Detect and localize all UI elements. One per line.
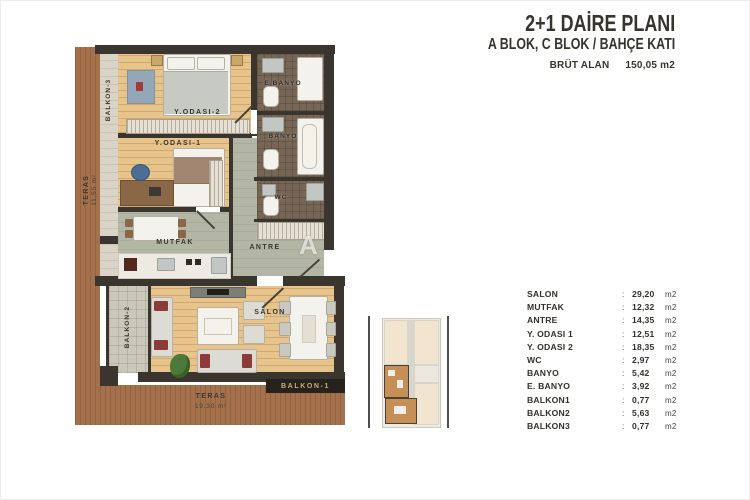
keyplan-unit-highlight bbox=[384, 365, 409, 398]
teras-left-label: TERAS 11,55 m² bbox=[79, 145, 101, 235]
gross-area-label: BRÜT ALAN bbox=[550, 60, 610, 71]
pillow-right bbox=[197, 57, 225, 70]
table-row: ANTRE:14,35m2 bbox=[527, 315, 677, 328]
corridor-floor bbox=[233, 138, 257, 225]
teras-left-name: TERAS bbox=[83, 175, 91, 206]
row-value: 0,77 bbox=[632, 421, 665, 431]
shower bbox=[297, 57, 323, 101]
kitchen-counter bbox=[118, 253, 231, 279]
row-label: SALON bbox=[527, 289, 622, 299]
area-table: SALON:29,20m2 MUTFAK:12,32m2 ANTRE:14,35… bbox=[527, 289, 677, 434]
row-separator: : bbox=[622, 315, 632, 325]
kitchen-chair-4 bbox=[178, 230, 186, 238]
wall-corridor bbox=[229, 138, 233, 208]
keyplan-unit-tl bbox=[384, 320, 409, 365]
kitchen-chair-2 bbox=[125, 230, 133, 238]
rug bbox=[127, 70, 155, 104]
row-unit: m2 bbox=[665, 303, 677, 312]
row-value: 3,92 bbox=[632, 381, 665, 391]
pillow-2 bbox=[154, 340, 168, 350]
row-separator: : bbox=[622, 329, 632, 339]
pillow-1 bbox=[154, 301, 168, 311]
table-row: Y. ODASI 1:12,51m2 bbox=[527, 329, 677, 342]
balkon-2-label: BALKON-2 bbox=[124, 306, 132, 348]
keyplan-left-line bbox=[368, 316, 370, 428]
row-unit: m2 bbox=[665, 369, 677, 378]
teras-bottom-name: TERAS bbox=[180, 393, 242, 401]
dining-chair-5 bbox=[326, 322, 336, 336]
teras-bottom-label: TERAS 19.30 m² bbox=[180, 393, 242, 410]
balkon-1-bar: BALKON-1 bbox=[266, 379, 345, 393]
banyo-toilet bbox=[263, 149, 279, 170]
page-subtitle: A BLOK, C BLOK / BAHÇE KATI bbox=[488, 36, 675, 54]
wall-right-upper bbox=[324, 45, 334, 285]
bathtub-inner bbox=[302, 124, 317, 169]
row-separator: : bbox=[622, 381, 632, 391]
table-runner bbox=[302, 315, 316, 343]
row-value: 14,35 bbox=[632, 315, 665, 325]
keyplan bbox=[368, 314, 450, 430]
row-value: 5,42 bbox=[632, 368, 665, 378]
dining-chair-4 bbox=[326, 301, 336, 315]
laptop bbox=[149, 187, 161, 196]
row-separator: : bbox=[622, 355, 632, 365]
row-unit: m2 bbox=[665, 382, 677, 391]
tv bbox=[207, 289, 229, 295]
row-label: BANYO bbox=[527, 368, 622, 378]
row-value: 0,77 bbox=[632, 395, 665, 405]
table-row: Y. ODASI 2:18,35m2 bbox=[527, 342, 677, 355]
row-unit: m2 bbox=[665, 409, 677, 418]
table-row: BALKON1:0,77m2 bbox=[527, 395, 677, 408]
row-unit: m2 bbox=[665, 316, 677, 325]
counter-item-1 bbox=[186, 259, 192, 265]
keyplan-hl-room-2 bbox=[397, 380, 403, 388]
table-row: BALKON3:0,77m2 bbox=[527, 421, 677, 434]
row-label: BALKON2 bbox=[527, 408, 622, 418]
row-label: Y. ODASI 2 bbox=[527, 342, 622, 352]
keyplan-unit-br bbox=[414, 383, 439, 425]
pillow-3 bbox=[200, 354, 210, 368]
keyplan-hl-room-1 bbox=[388, 370, 395, 376]
row-label: BALKON3 bbox=[527, 421, 622, 431]
banyo-sink bbox=[262, 117, 284, 132]
table-row: WC:2,97m2 bbox=[527, 355, 677, 368]
wardrobe-yo2 bbox=[126, 119, 250, 134]
balkon-3-label: BALKON-3 bbox=[105, 79, 113, 121]
row-separator: : bbox=[622, 342, 632, 352]
teras-left-area: 11,55 m² bbox=[91, 174, 98, 206]
coffee-table-inner bbox=[204, 318, 232, 335]
table-row: E. BANYO:3,92m2 bbox=[527, 381, 677, 394]
table-row: BALKON2:5,63m2 bbox=[527, 408, 677, 421]
pillow-4 bbox=[242, 354, 252, 368]
row-unit: m2 bbox=[665, 343, 677, 352]
wall-banyo-wc bbox=[254, 177, 324, 181]
row-value: 5,63 bbox=[632, 408, 665, 418]
kitchen-sink bbox=[157, 258, 175, 271]
gross-area-line: BRÜT ALAN150,05 m2 bbox=[441, 60, 675, 71]
title-block: 2+1 DAİRE PLANI A BLOK, C BLOK / BAHÇE K… bbox=[441, 11, 675, 71]
ebanyo-toilet bbox=[263, 86, 279, 107]
entry-door-gap bbox=[324, 250, 334, 276]
row-separator: : bbox=[622, 408, 632, 418]
row-value: 12,51 bbox=[632, 329, 665, 339]
row-label: MUTFAK bbox=[527, 302, 622, 312]
salon-door-gap bbox=[257, 276, 283, 286]
wall-balkon2-outer bbox=[106, 285, 109, 373]
row-label: ANTRE bbox=[527, 315, 622, 325]
mutfak-label: MUTFAK bbox=[118, 239, 232, 247]
banyo-label: BANYO bbox=[250, 133, 316, 141]
row-unit: m2 bbox=[665, 356, 677, 365]
rug-detail bbox=[136, 82, 143, 91]
teras-left-deck bbox=[75, 47, 100, 425]
pillow-left bbox=[167, 57, 195, 70]
tv-unit bbox=[190, 287, 246, 298]
row-value: 29,20 bbox=[632, 289, 665, 299]
gross-area-value: 150,05 m2 bbox=[625, 60, 675, 71]
row-separator: : bbox=[622, 395, 632, 405]
e-banyo-label: E.BANYO bbox=[250, 80, 316, 88]
keyplan-unit-mr bbox=[414, 365, 439, 383]
row-unit: m2 bbox=[665, 396, 677, 405]
desk bbox=[120, 180, 174, 206]
dining-table bbox=[289, 296, 328, 360]
dining-chair-6 bbox=[326, 343, 336, 357]
table-row: BANYO:5,42m2 bbox=[527, 368, 677, 381]
bed-2 bbox=[163, 54, 231, 116]
ebanyo-sink bbox=[262, 58, 284, 73]
sofa-left bbox=[151, 297, 173, 357]
teras-bottom-area: 19.30 m² bbox=[180, 403, 242, 410]
row-label: WC bbox=[527, 355, 622, 365]
wall-wc-antre bbox=[254, 219, 324, 222]
row-separator: : bbox=[622, 302, 632, 312]
row-value: 18,35 bbox=[632, 342, 665, 352]
bathtub bbox=[297, 118, 324, 175]
keyplan-right-line bbox=[447, 316, 449, 428]
y-odasi-2-label: Y.ODASI-2 bbox=[130, 109, 265, 117]
balkon-3-label-wrap: BALKON-3 bbox=[103, 65, 115, 135]
wall-corner-post bbox=[100, 366, 118, 386]
coffee-table bbox=[197, 307, 239, 345]
row-separator: : bbox=[622, 421, 632, 431]
radiator-yo1 bbox=[209, 160, 223, 207]
wall-top bbox=[95, 45, 335, 54]
keyplan-unit-tr bbox=[414, 320, 439, 365]
kitchen-chair-1 bbox=[125, 219, 133, 227]
kitchen-table bbox=[133, 216, 179, 241]
dining-chair-3 bbox=[279, 343, 291, 357]
dining-chair-2 bbox=[279, 322, 291, 336]
bed-2-blanket bbox=[164, 71, 228, 114]
row-unit: m2 bbox=[665, 422, 677, 431]
keyplan-building bbox=[382, 318, 441, 428]
row-label: Y. ODASI 1 bbox=[527, 329, 622, 339]
wc-label: WC bbox=[248, 194, 314, 202]
balkon-2-label-wrap: BALKON-2 bbox=[122, 287, 134, 367]
counter-item-2 bbox=[195, 259, 201, 265]
kitchen-chair-3 bbox=[178, 219, 186, 227]
row-value: 2,97 bbox=[632, 355, 665, 365]
armchair-2 bbox=[243, 325, 265, 344]
salon-label: SALON bbox=[234, 309, 306, 317]
yo1-door-gap bbox=[196, 207, 220, 212]
fridge bbox=[211, 257, 227, 274]
stove bbox=[124, 258, 137, 271]
row-unit: m2 bbox=[665, 290, 677, 299]
balkon-1-label: BALKON-1 bbox=[281, 383, 330, 390]
sofa-bottom bbox=[197, 349, 257, 373]
floorplan-page: TERAS 11,55 m² TERAS 19.30 m² BALKON-3 bbox=[0, 0, 750, 500]
row-label: BALKON1 bbox=[527, 395, 622, 405]
nightstand-right bbox=[231, 55, 243, 66]
watermark-letter: A bbox=[299, 230, 318, 261]
row-unit: m2 bbox=[665, 330, 677, 339]
table-row: MUTFAK:12,32m2 bbox=[527, 302, 677, 315]
row-separator: : bbox=[622, 368, 632, 378]
y-odasi-1-label: Y.ODASI-1 bbox=[118, 140, 238, 148]
desk-chair bbox=[131, 164, 150, 181]
row-label: E. BANYO bbox=[527, 381, 622, 391]
nightstand-left bbox=[151, 55, 163, 66]
page-title: 2+1 DAİRE PLANI bbox=[492, 11, 675, 36]
row-value: 12,32 bbox=[632, 302, 665, 312]
antre-label: ANTRE bbox=[220, 244, 310, 252]
keyplan-hl-room-3 bbox=[394, 406, 406, 414]
row-separator: : bbox=[622, 289, 632, 299]
table-row: SALON:29,20m2 bbox=[527, 289, 677, 302]
balkon-3-cap bbox=[100, 236, 118, 244]
keyplan-salon-highlight bbox=[385, 398, 417, 424]
